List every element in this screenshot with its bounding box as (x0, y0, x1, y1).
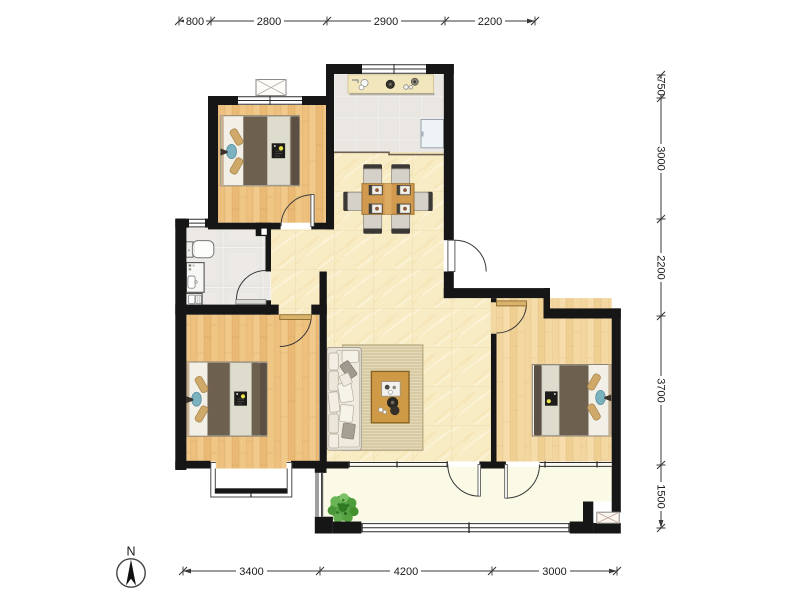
svg-text:2900: 2900 (374, 16, 398, 28)
svg-text:3400: 3400 (239, 566, 263, 578)
svg-text:2800: 2800 (257, 16, 281, 28)
svg-text:N: N (126, 545, 135, 559)
svg-text:3000: 3000 (655, 146, 667, 170)
svg-text:750: 750 (655, 77, 667, 95)
svg-text:3700: 3700 (655, 378, 667, 402)
svg-text:800: 800 (186, 16, 204, 28)
svg-text:3000: 3000 (542, 566, 566, 578)
svg-text:2200: 2200 (478, 16, 502, 28)
svg-text:1500: 1500 (655, 484, 667, 508)
svg-text:4200: 4200 (394, 566, 418, 578)
svg-text:2200: 2200 (655, 255, 667, 279)
